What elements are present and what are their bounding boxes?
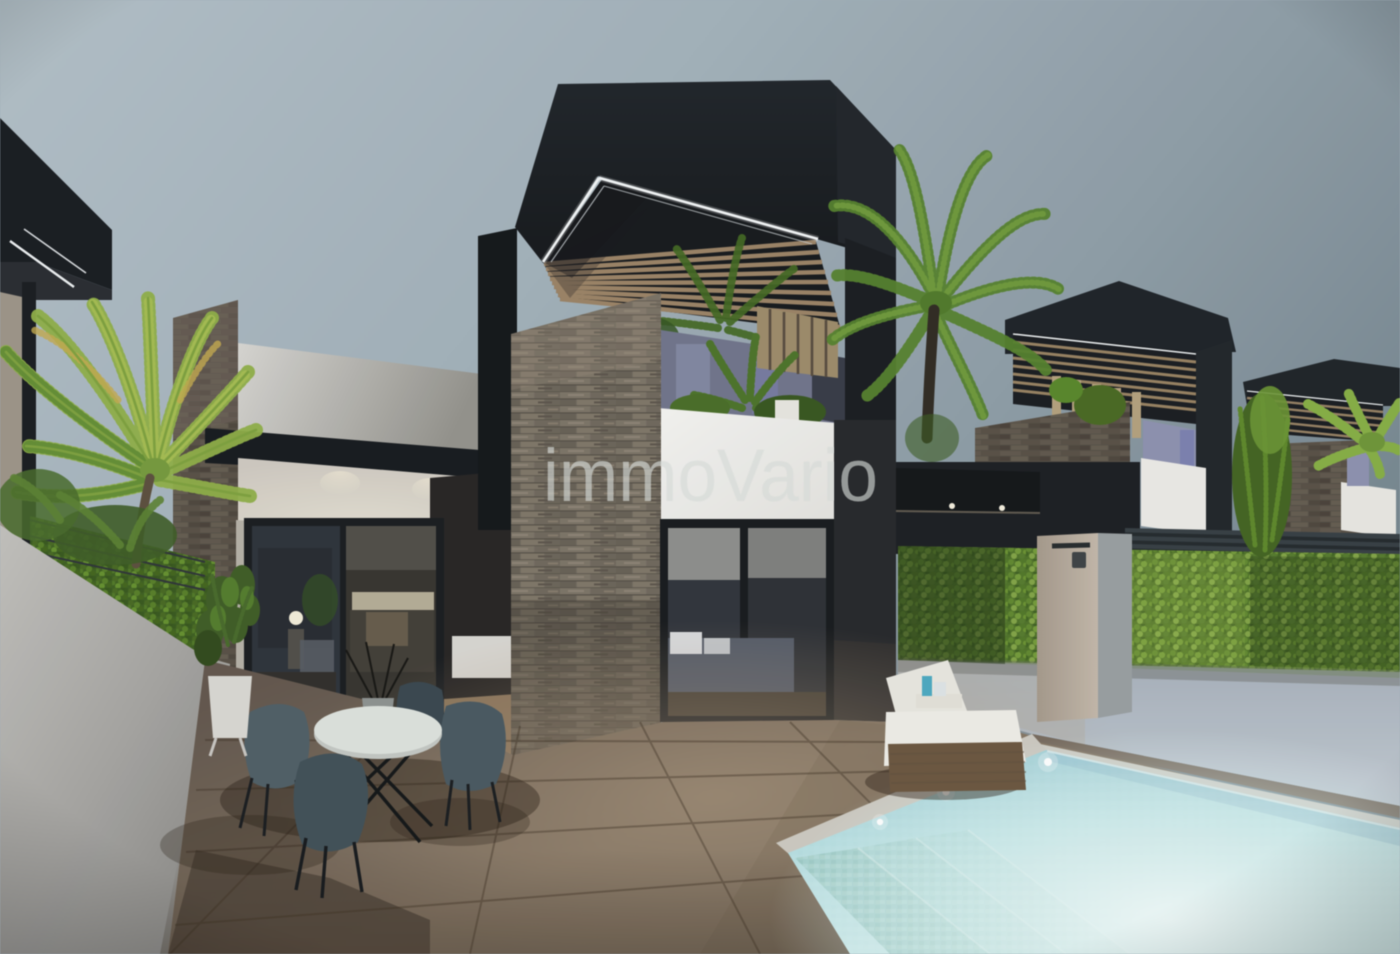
svg-text:immoVario: immoVario (543, 434, 878, 517)
